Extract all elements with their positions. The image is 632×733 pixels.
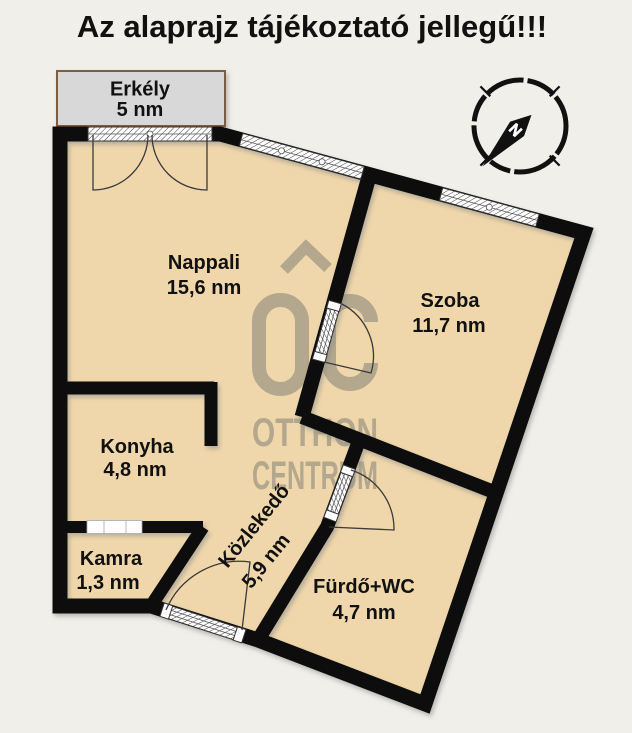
svg-text:11,7 nm: 11,7 nm bbox=[412, 315, 485, 337]
svg-text:1,3 nm: 1,3 nm bbox=[76, 572, 139, 594]
svg-text:Szoba: Szoba bbox=[421, 290, 481, 312]
svg-text:Az alaprajz tájékoztató jelleg: Az alaprajz tájékoztató jellegű!!! bbox=[77, 9, 547, 44]
svg-text:Erkély: Erkély bbox=[110, 79, 171, 101]
svg-text:5 nm: 5 nm bbox=[117, 99, 164, 121]
svg-text:4,7 nm: 4,7 nm bbox=[332, 602, 395, 624]
svg-text:Nappali: Nappali bbox=[168, 252, 240, 274]
svg-text:Konyha: Konyha bbox=[100, 436, 174, 458]
svg-text:Fürdő+WC: Fürdő+WC bbox=[313, 576, 415, 598]
svg-text:Kamra: Kamra bbox=[80, 548, 143, 570]
svg-text:15,6 nm: 15,6 nm bbox=[167, 277, 241, 299]
svg-text:4,8 nm: 4,8 nm bbox=[103, 459, 166, 481]
